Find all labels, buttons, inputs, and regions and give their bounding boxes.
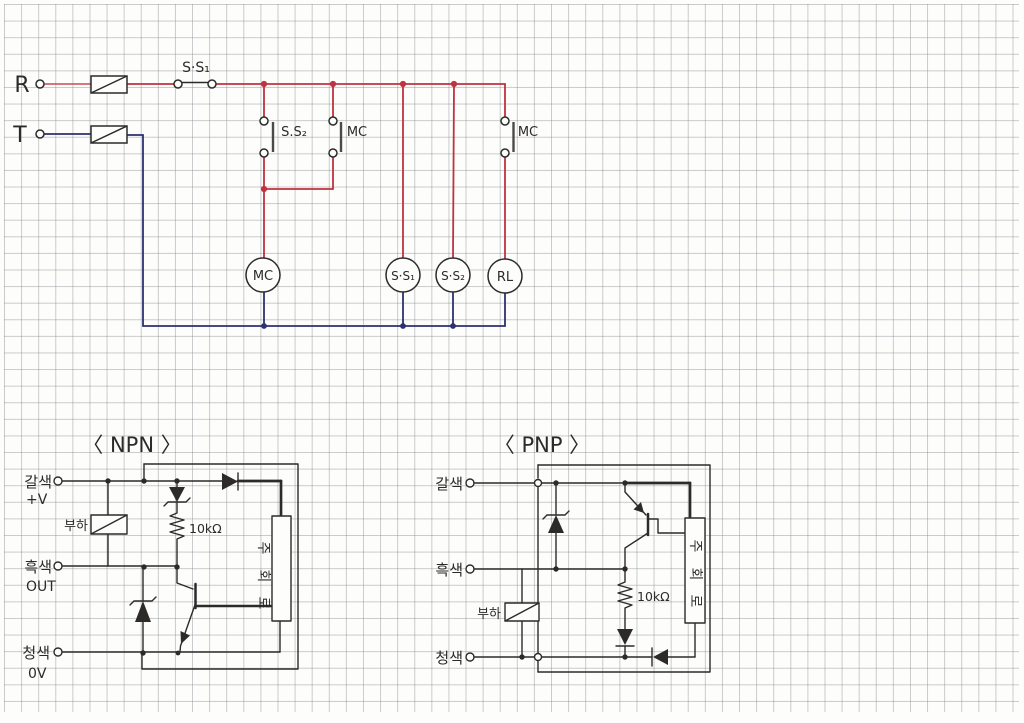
r-terminal <box>36 80 44 88</box>
npn-blue-terminal <box>54 648 62 656</box>
svg-text:로: 로 <box>255 597 271 610</box>
npn-sensor-diagram: 〈 NPN 〉 갈색 +V 흑색 OUT 청색 0V 부하 10kΩ 주 회 로 <box>22 433 298 682</box>
pnp-black-terminal <box>466 565 474 573</box>
npn-black-sub-label: OUT <box>26 579 56 595</box>
npn-zener1-triangle <box>169 487 185 502</box>
pnp-zener-triangle <box>548 515 564 533</box>
relay-control-circuit: R T S·S₁ S.S₂ MC MC MC S·S₁ S·S₂ RL <box>12 60 538 329</box>
coil-rl-label: RL <box>497 270 514 285</box>
pnp-labels: 〈 PNP 〉 갈색 흑색 청색 부하 10kΩ 주 회 로 <box>435 433 703 667</box>
pnp-resistor-label: 10kΩ <box>637 589 670 604</box>
npn-filled-symbols <box>105 473 238 656</box>
npn-brown-sub-label: +V <box>26 492 48 508</box>
coil-ss2-label: S·S₂ <box>441 269 465 283</box>
pnp-brown-terminal <box>466 479 474 487</box>
contact-mc-holding-label: MC <box>347 125 367 140</box>
pnp-wires <box>466 465 710 672</box>
t-terminal <box>36 130 44 138</box>
npn-resistor <box>170 502 184 568</box>
contact-ss2 <box>260 117 273 157</box>
pnp-filled-symbols <box>519 480 668 665</box>
relay-components <box>36 76 522 293</box>
svg-text:회: 회 <box>255 570 271 583</box>
svg-text:회: 회 <box>687 568 703 581</box>
pnp-main-circuit-label: 주 회 로 <box>687 540 703 608</box>
fuse-r <box>91 76 127 93</box>
contact-mc-rl-label: MC <box>518 125 538 140</box>
npn-brown-terminal <box>54 477 62 485</box>
coil-mc-label: MC <box>253 269 273 284</box>
circuit-drawing: R T S·S₁ S.S₂ MC MC MC S·S₁ S·S₂ RL <box>0 0 1024 723</box>
pnp-brown-passthrough <box>535 480 542 487</box>
pnp-load-label: 부하 <box>477 607 501 622</box>
contact-mc-rl-branch <box>501 117 514 157</box>
t-phase-label: T <box>12 123 27 148</box>
svg-text:주: 주 <box>687 540 703 553</box>
npn-blue-label: 청색 <box>22 644 50 662</box>
npn-black-terminal <box>54 562 62 570</box>
fuse-t <box>91 126 127 143</box>
svg-text:주: 주 <box>255 542 271 555</box>
npn-labels: 〈 NPN 〉 갈색 +V 흑색 OUT 청색 0V 부하 10kΩ 주 회 로 <box>22 433 271 682</box>
graph-paper-sheet: R T S·S₁ S.S₂ MC MC MC S·S₁ S·S₂ RL <box>0 0 1024 723</box>
red-wires <box>44 84 505 259</box>
coil-ss1-label: S·S₁ <box>391 269 415 283</box>
pnp-brown-label: 갈색 <box>435 475 463 493</box>
npn-blue-sub-label: 0V <box>28 666 47 682</box>
npn-title: 〈 NPN 〉 <box>82 433 181 457</box>
npn-brown-label: 갈색 <box>24 473 52 491</box>
blue-wires <box>44 134 505 326</box>
r-phase-label: R <box>14 73 29 98</box>
switch-ss1-label: S·S₁ <box>182 60 210 76</box>
npn-diode-triangle <box>222 473 238 490</box>
knife-switch-ss1 <box>174 80 216 88</box>
pnp-blue-terminal <box>466 653 474 661</box>
pnp-diode-triangle <box>617 629 633 645</box>
pnp-blue-label: 청색 <box>435 649 463 667</box>
pnp-rail-diode-triangle <box>653 649 668 665</box>
pnp-resistor <box>618 569 632 629</box>
contact-mc-holding <box>329 117 341 157</box>
npn-zener2-triangle <box>135 601 151 622</box>
svg-text:로: 로 <box>687 595 703 608</box>
npn-main-circuit-box <box>272 516 291 621</box>
npn-load-label: 부하 <box>64 519 88 534</box>
pnp-sensor-diagram: 〈 PNP 〉 갈색 흑색 청색 부하 10kΩ 주 회 로 <box>435 433 710 672</box>
contact-ss2-label: S.S₂ <box>281 125 307 140</box>
npn-black-label: 흑색 <box>24 558 52 576</box>
npn-resistor-label: 10kΩ <box>189 521 222 536</box>
npn-main-circuit-label: 주 회 로 <box>255 542 271 610</box>
pnp-black-label: 흑색 <box>435 561 463 579</box>
pnp-blue-passthrough <box>535 654 542 661</box>
pnp-title: 〈 PNP 〉 <box>494 433 590 457</box>
